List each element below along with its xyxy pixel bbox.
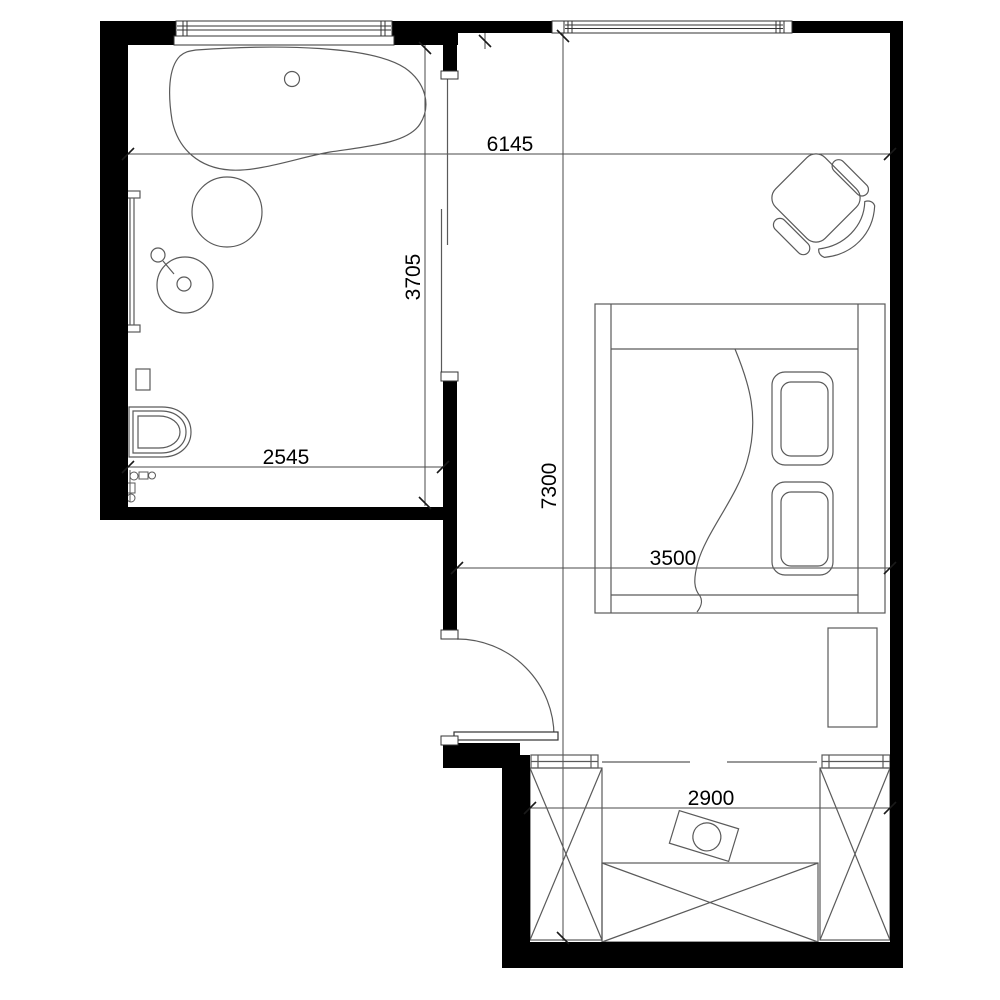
armchair bbox=[755, 141, 891, 277]
jamb bbox=[441, 372, 458, 381]
dim-overall-depth: 7300 bbox=[538, 463, 561, 510]
dim-overall-width: 6145 bbox=[487, 133, 534, 156]
walls bbox=[100, 21, 903, 968]
wardrobe-track bbox=[822, 755, 890, 768]
bathroom-stool bbox=[192, 177, 262, 247]
door-leaf bbox=[454, 732, 558, 740]
washbasin-drain bbox=[177, 277, 191, 291]
blanket-fold bbox=[695, 349, 753, 612]
wall bbox=[443, 45, 457, 72]
bathroom-window bbox=[174, 21, 394, 45]
bed bbox=[595, 304, 885, 613]
shelf bbox=[136, 369, 150, 390]
bedroom bbox=[595, 141, 891, 727]
floor-plan-page: 6145 3705 7300 2545 3500 2900 bbox=[0, 0, 1000, 1000]
wall bbox=[792, 21, 903, 33]
wardrobe-left bbox=[530, 768, 602, 940]
jamb bbox=[441, 630, 458, 639]
armchair-armrest bbox=[771, 216, 813, 258]
floor-plan-canvas: 6145 3705 7300 2545 3500 2900 bbox=[0, 0, 1000, 1000]
washbasin bbox=[157, 257, 213, 313]
wardrobe-right bbox=[820, 768, 890, 940]
wall bbox=[443, 381, 457, 631]
toilet bbox=[129, 407, 191, 457]
bathroom bbox=[127, 47, 448, 502]
dim-bathroom-width: 2545 bbox=[263, 446, 310, 469]
jamb bbox=[784, 21, 792, 33]
ottoman bbox=[669, 811, 738, 862]
wall bbox=[502, 942, 903, 968]
pillow bbox=[772, 372, 833, 465]
dim-bedroom-width: 3500 bbox=[650, 547, 697, 570]
faucet bbox=[151, 248, 165, 262]
plumbing-valves bbox=[127, 470, 156, 502]
armchair-armrest bbox=[829, 157, 871, 199]
bed-frame bbox=[595, 304, 885, 613]
dim-closet-width: 2900 bbox=[688, 787, 735, 810]
wall bbox=[455, 21, 552, 33]
wardrobe-track bbox=[531, 755, 598, 768]
wardrobe-bottom bbox=[602, 863, 818, 942]
dimension-labels: 6145 3705 7300 2545 3500 2900 bbox=[263, 133, 735, 810]
armchair-seat bbox=[767, 149, 866, 248]
jamb bbox=[441, 736, 458, 745]
jamb bbox=[441, 71, 458, 79]
wall bbox=[100, 507, 457, 520]
towel-rail bbox=[127, 191, 140, 332]
bathtub bbox=[170, 47, 426, 170]
window-sill bbox=[174, 36, 394, 45]
bedroom-window bbox=[552, 21, 792, 33]
pillow bbox=[772, 482, 833, 575]
armchair-back bbox=[816, 198, 885, 267]
bathtub-drain bbox=[285, 72, 300, 87]
radiator bbox=[828, 628, 877, 727]
wall bbox=[100, 21, 128, 520]
door-swing-arc bbox=[457, 639, 554, 736]
wall bbox=[890, 21, 903, 968]
wall bbox=[502, 755, 530, 968]
dim-bathroom-depth: 3705 bbox=[402, 254, 425, 301]
sliding-door bbox=[442, 79, 448, 373]
wall bbox=[392, 21, 458, 45]
